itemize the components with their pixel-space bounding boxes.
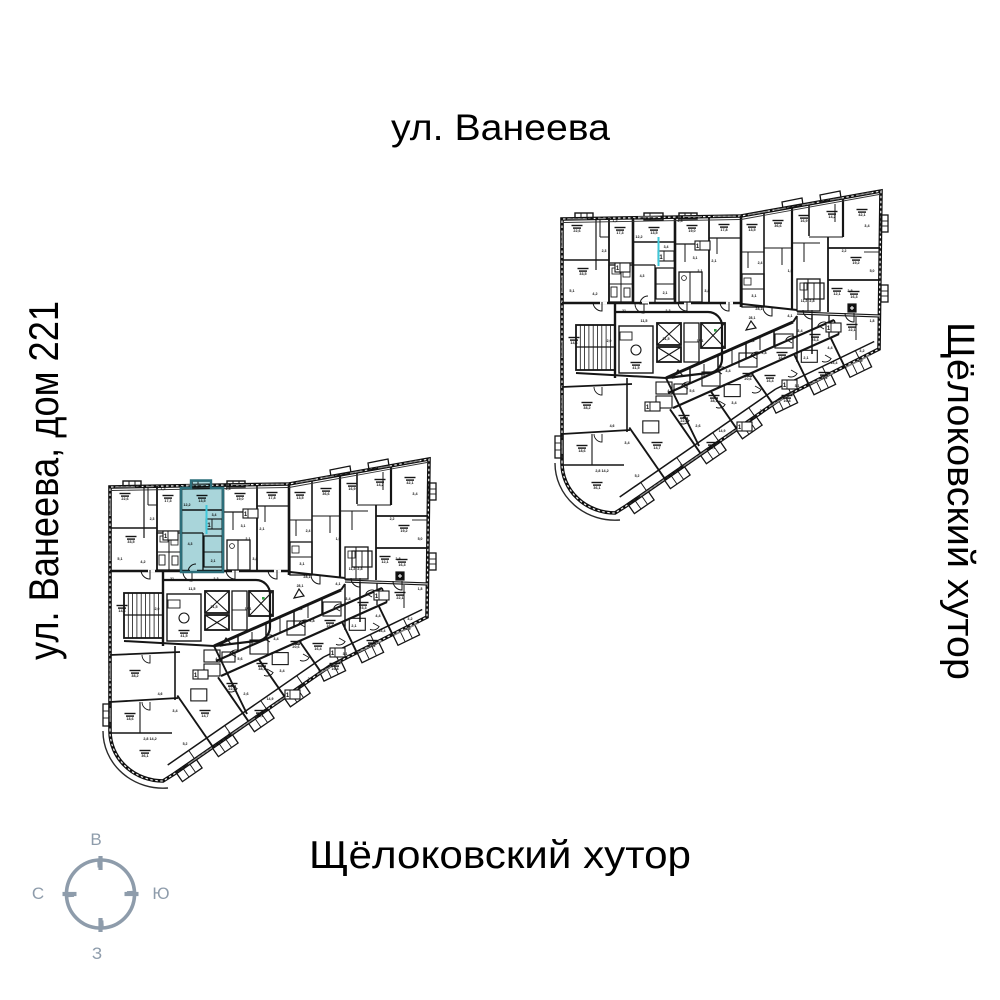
svg-text:2,8: 2,8 (809, 299, 814, 303)
svg-text:16,8: 16,8 (331, 667, 338, 671)
svg-text:14,6: 14,6 (118, 609, 125, 613)
svg-text:2,1: 2,1 (803, 356, 808, 360)
svg-text:31,5: 31,5 (662, 337, 669, 341)
svg-text:36,1: 36,1 (593, 486, 600, 490)
svg-text:5,6: 5,6 (689, 389, 694, 393)
svg-text:16,4: 16,4 (314, 647, 322, 651)
svg-text:2,1: 2,1 (259, 527, 264, 531)
svg-text:4,1: 4,1 (335, 582, 340, 586)
svg-text:13,5: 13,5 (296, 496, 303, 500)
svg-text:14,9: 14,9 (267, 697, 274, 701)
svg-text:3,8: 3,8 (252, 557, 257, 561)
svg-text:Ю: Ю (152, 884, 169, 903)
svg-text:2,9: 2,9 (405, 627, 410, 631)
svg-text:16,2: 16,2 (778, 356, 785, 360)
svg-text:33,5: 33,5 (579, 272, 586, 276)
svg-text:20,6: 20,6 (744, 377, 751, 381)
svg-text:14,4: 14,4 (831, 361, 838, 365)
svg-text:14,4: 14,4 (379, 629, 386, 633)
svg-text:22,2: 22,2 (680, 419, 687, 423)
svg-text:17,8: 17,8 (268, 496, 275, 500)
svg-text:17,8: 17,8 (720, 228, 727, 232)
svg-text:4,2: 4,2 (592, 292, 597, 296)
svg-text:2,2: 2,2 (842, 249, 847, 253)
svg-text:2,1: 2,1 (697, 269, 702, 273)
svg-text:14,9: 14,9 (719, 429, 726, 433)
svg-text:22,1: 22,1 (848, 328, 855, 332)
svg-text:ул. Ванеева, дом 221: ул. Ванеева, дом 221 (20, 301, 67, 660)
svg-text:38,1: 38,1 (710, 399, 717, 403)
svg-text:4,2: 4,2 (140, 560, 145, 564)
svg-text:2,2: 2,2 (228, 732, 233, 736)
svg-text:4,6: 4,6 (610, 424, 615, 428)
svg-text:28,2: 28,2 (368, 644, 375, 648)
svg-text:22,1: 22,1 (396, 596, 403, 600)
svg-text:3,1: 3,1 (241, 524, 246, 528)
svg-text:2,4: 2,4 (758, 261, 763, 265)
svg-text:3,8: 3,8 (704, 289, 709, 293)
svg-text:ул. Ванеева: ул. Ванеева (391, 106, 610, 148)
svg-text:1,9: 1,9 (336, 537, 341, 541)
svg-text:28,2: 28,2 (820, 376, 827, 380)
svg-text:2,2: 2,2 (390, 517, 395, 521)
svg-text:38,1: 38,1 (708, 446, 715, 450)
svg-text:3,1: 3,1 (299, 562, 304, 566)
svg-text:4,6: 4,6 (158, 692, 163, 696)
svg-text:2,3: 2,3 (602, 249, 607, 253)
svg-text:4,3: 4,3 (640, 274, 645, 278)
svg-text:2,8: 2,8 (357, 567, 362, 571)
svg-text:2,6: 2,6 (695, 424, 700, 428)
svg-text:11,2: 11,2 (801, 299, 808, 303)
svg-text:2,9: 2,9 (857, 359, 862, 363)
svg-text:19,2: 19,2 (852, 261, 859, 265)
svg-text:12,1: 12,1 (833, 292, 840, 296)
svg-text:2,8: 2,8 (847, 289, 852, 293)
svg-text:3,1: 3,1 (343, 652, 348, 656)
svg-text:12,2: 12,2 (635, 235, 642, 239)
svg-text:17,3: 17,3 (164, 499, 171, 503)
svg-text:2,1: 2,1 (351, 624, 356, 628)
svg-text:2,1: 2,1 (245, 537, 250, 541)
svg-text:5,1: 5,1 (569, 289, 574, 293)
svg-text:З: З (92, 944, 102, 963)
svg-text:38,2: 38,2 (131, 674, 138, 678)
svg-text:17,3: 17,3 (616, 231, 623, 235)
svg-text:3,8: 3,8 (761, 351, 766, 355)
svg-text:13,5: 13,5 (748, 228, 755, 232)
svg-text:36,6: 36,6 (322, 492, 329, 496)
svg-text:3,2: 3,2 (859, 349, 864, 353)
svg-text:2,1: 2,1 (711, 259, 716, 263)
svg-text:11,5: 11,5 (641, 319, 648, 323)
svg-text:С: С (32, 884, 44, 903)
svg-text:41,5: 41,5 (180, 634, 187, 638)
svg-text:16,3: 16,3 (850, 295, 857, 299)
svg-text:2,8 14,2: 2,8 14,2 (143, 737, 156, 741)
svg-text:14,6: 14,6 (570, 341, 577, 345)
svg-text:21: 21 (170, 577, 174, 581)
svg-text:22,6: 22,6 (573, 229, 580, 233)
svg-text:3,4: 3,4 (664, 245, 669, 249)
svg-text:11,2: 11,2 (349, 567, 356, 571)
svg-text:38,2: 38,2 (583, 406, 590, 410)
svg-text:5,0: 5,0 (418, 537, 423, 541)
svg-text:5,6: 5,6 (237, 657, 242, 661)
svg-text:14,7: 14,7 (653, 446, 660, 450)
svg-text:22,6: 22,6 (121, 497, 128, 501)
svg-text:2,0: 2,0 (607, 339, 612, 343)
svg-text:38,1: 38,1 (256, 714, 263, 718)
svg-text:3,1: 3,1 (795, 384, 800, 388)
svg-text:41,5: 41,5 (632, 366, 639, 370)
svg-text:33,5: 33,5 (127, 540, 134, 544)
svg-text:4,1: 4,1 (215, 657, 220, 661)
svg-text:2,2: 2,2 (308, 677, 313, 681)
svg-text:5,2: 5,2 (183, 742, 188, 746)
svg-text:2,3: 2,3 (213, 577, 218, 581)
svg-text:12,1: 12,1 (381, 560, 388, 564)
svg-text:19,2: 19,2 (400, 529, 407, 533)
svg-text:2,3: 2,3 (665, 309, 670, 313)
svg-text:16,8: 16,8 (783, 399, 790, 403)
svg-text:14,2: 14,2 (376, 483, 383, 487)
svg-text:28,1: 28,1 (297, 584, 304, 588)
svg-text:28,1: 28,1 (749, 316, 756, 320)
svg-text:21: 21 (622, 309, 626, 313)
svg-text:36,1: 36,1 (141, 754, 148, 758)
svg-text:3,3: 3,3 (750, 339, 755, 343)
svg-text:2,0: 2,0 (155, 607, 160, 611)
svg-text:31,5: 31,5 (210, 605, 217, 609)
svg-text:3,8: 3,8 (309, 619, 314, 623)
svg-text:4,1: 4,1 (787, 314, 792, 318)
svg-text:36,6: 36,6 (774, 224, 781, 228)
svg-text:16,2: 16,2 (326, 624, 333, 628)
svg-text:Щёлоковский хутор: Щёлоковский хутор (309, 834, 691, 877)
svg-text:14,7: 14,7 (201, 714, 208, 718)
svg-text:23,3: 23,3 (359, 606, 366, 610)
svg-text:2,8 14,2: 2,8 14,2 (595, 469, 608, 473)
svg-text:Щёлоковский хутор: Щёлоковский хутор (939, 322, 981, 680)
svg-text:28,1: 28,1 (755, 307, 762, 311)
svg-text:23,3: 23,3 (811, 338, 818, 342)
svg-text:5,2: 5,2 (635, 474, 640, 478)
svg-text:5,1: 5,1 (117, 557, 122, 561)
svg-text:3,1: 3,1 (693, 256, 698, 260)
svg-text:28,1: 28,1 (303, 575, 310, 579)
svg-text:16,3: 16,3 (398, 563, 405, 567)
svg-text:2,8: 2,8 (395, 557, 400, 561)
svg-text:2,4: 2,4 (306, 529, 311, 533)
svg-text:38,1: 38,1 (258, 667, 265, 671)
svg-text:19,0: 19,0 (236, 497, 243, 501)
svg-text:1,2: 1,2 (160, 487, 165, 491)
svg-text:16,9: 16,9 (800, 219, 807, 223)
svg-text:5,0: 5,0 (870, 269, 875, 273)
svg-text:18,6: 18,6 (578, 449, 585, 453)
svg-text:2,2: 2,2 (760, 409, 765, 413)
svg-text:42,1: 42,1 (858, 213, 865, 217)
svg-text:20,6: 20,6 (292, 645, 299, 649)
svg-text:1,8: 1,8 (870, 319, 875, 323)
svg-text:2,2: 2,2 (680, 464, 685, 468)
svg-text:16,4: 16,4 (766, 379, 774, 383)
svg-text:2,1: 2,1 (663, 291, 668, 295)
svg-text:1,9: 1,9 (788, 269, 793, 273)
svg-text:17,1: 17,1 (245, 607, 252, 611)
svg-text:2,6: 2,6 (243, 692, 248, 696)
svg-text:3,3: 3,3 (298, 607, 303, 611)
svg-text:16,9: 16,9 (348, 487, 355, 491)
svg-text:11,5: 11,5 (189, 587, 196, 591)
svg-text:13,5: 13,5 (650, 231, 657, 235)
svg-text:3,1: 3,1 (751, 294, 756, 298)
svg-text:4,1: 4,1 (667, 389, 672, 393)
svg-text:1,8: 1,8 (418, 587, 423, 591)
svg-text:14,2: 14,2 (828, 215, 835, 219)
svg-text:2,3: 2,3 (150, 517, 155, 521)
svg-text:3,2: 3,2 (407, 617, 412, 621)
svg-text:17,1: 17,1 (697, 339, 704, 343)
svg-text:19,0: 19,0 (688, 229, 695, 233)
svg-text:42,1: 42,1 (406, 481, 413, 485)
svg-text:1,2: 1,2 (612, 219, 617, 223)
svg-text:В: В (90, 830, 101, 849)
svg-text:22,2: 22,2 (228, 687, 235, 691)
svg-text:18,6: 18,6 (126, 717, 133, 721)
